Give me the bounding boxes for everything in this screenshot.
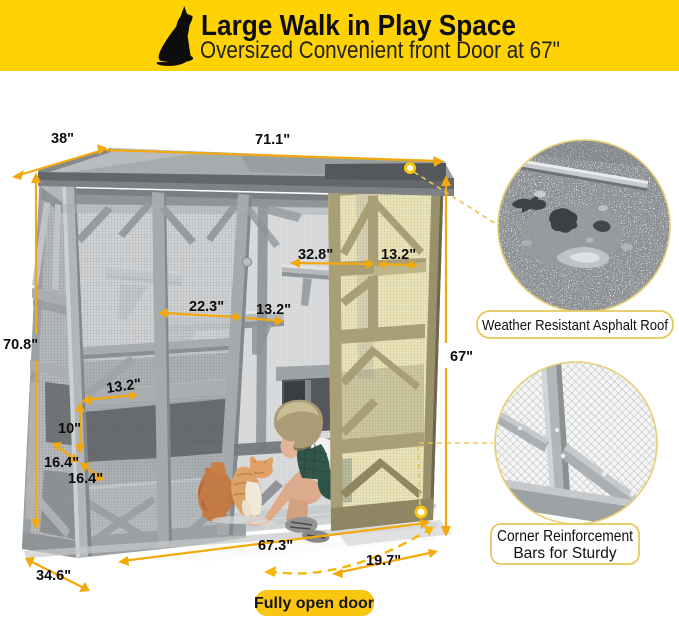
svg-text:71.1": 71.1"	[255, 132, 290, 148]
svg-text:16.4": 16.4"	[44, 455, 79, 471]
svg-text:Oversized Convenient front Doo: Oversized Convenient front Door at 67"	[200, 37, 560, 64]
svg-text:Corner Reinforcement: Corner Reinforcement	[497, 528, 634, 545]
svg-text:Fully open door: Fully open door	[254, 595, 374, 612]
svg-text:67": 67"	[450, 349, 473, 365]
svg-text:Bars for Sturdy: Bars for Sturdy	[513, 545, 617, 562]
svg-text:70.8": 70.8"	[3, 337, 38, 353]
svg-text:34.6": 34.6"	[36, 568, 71, 584]
svg-text:19.7": 19.7"	[366, 553, 401, 569]
svg-text:13.2": 13.2"	[381, 247, 416, 263]
svg-text:Weather Resistant Asphalt Roof: Weather Resistant Asphalt Roof	[482, 317, 669, 334]
svg-text:38": 38"	[51, 131, 74, 147]
svg-text:13.2": 13.2"	[256, 302, 291, 318]
svg-text:10": 10"	[58, 421, 81, 437]
svg-text:32.8": 32.8"	[298, 247, 333, 263]
svg-text:22.3": 22.3"	[189, 299, 224, 315]
svg-text:16.4": 16.4"	[68, 471, 103, 487]
svg-text:67.3": 67.3"	[258, 538, 293, 554]
